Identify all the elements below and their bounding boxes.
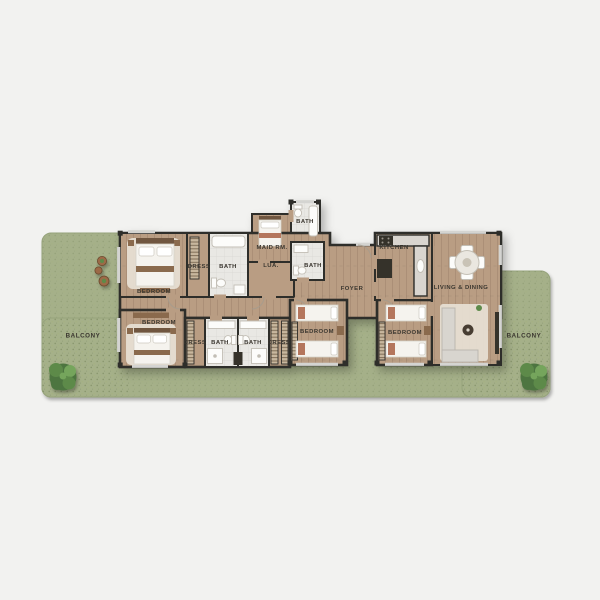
room-label-bedroom-2: BEDROOM	[142, 320, 176, 326]
room-label-bath-3: BATH	[304, 263, 322, 269]
room-label-bath-5: BATH	[244, 340, 262, 346]
room-label-bath-4: BATH	[211, 340, 229, 346]
room-label-bath-1: BATH	[219, 264, 237, 270]
room-label-laundry: LUA.	[263, 263, 279, 269]
tv-console-icon	[495, 312, 499, 354]
balcony-label-left: BALCONY	[66, 333, 101, 340]
room-label-dress-1: DRESS	[188, 264, 211, 270]
floor-plan-graphic	[0, 0, 600, 600]
tree-icon	[520, 363, 548, 391]
room-label-kitchen: KITCHEN	[379, 245, 408, 251]
room-label-foyer: FOYER	[341, 286, 364, 292]
single-bed-icon	[259, 216, 281, 246]
tree-icon	[49, 363, 77, 391]
room-label-maid-room: MAID RM.	[256, 245, 287, 251]
room-label-bedroom-4: BEDROOM	[388, 330, 422, 336]
room-label-bath-2: BATH	[296, 219, 314, 225]
floor-plan-canvas: BEDROOM BEDROOM BEDROOM BEDROOM DRESS DR…	[0, 0, 600, 600]
room-label-dress-2: DRESS	[184, 340, 207, 346]
room-label-living-dining: LIVING & DINING	[434, 285, 489, 291]
room-label-bedroom-3: BEDROOM	[300, 329, 334, 335]
room-label-bedroom-1: BEDROOM	[137, 289, 171, 295]
double-bed-icon	[127, 238, 180, 293]
balcony-label-right: BALCONY	[507, 333, 542, 340]
room-label-dress-3: DRESS	[268, 340, 291, 346]
